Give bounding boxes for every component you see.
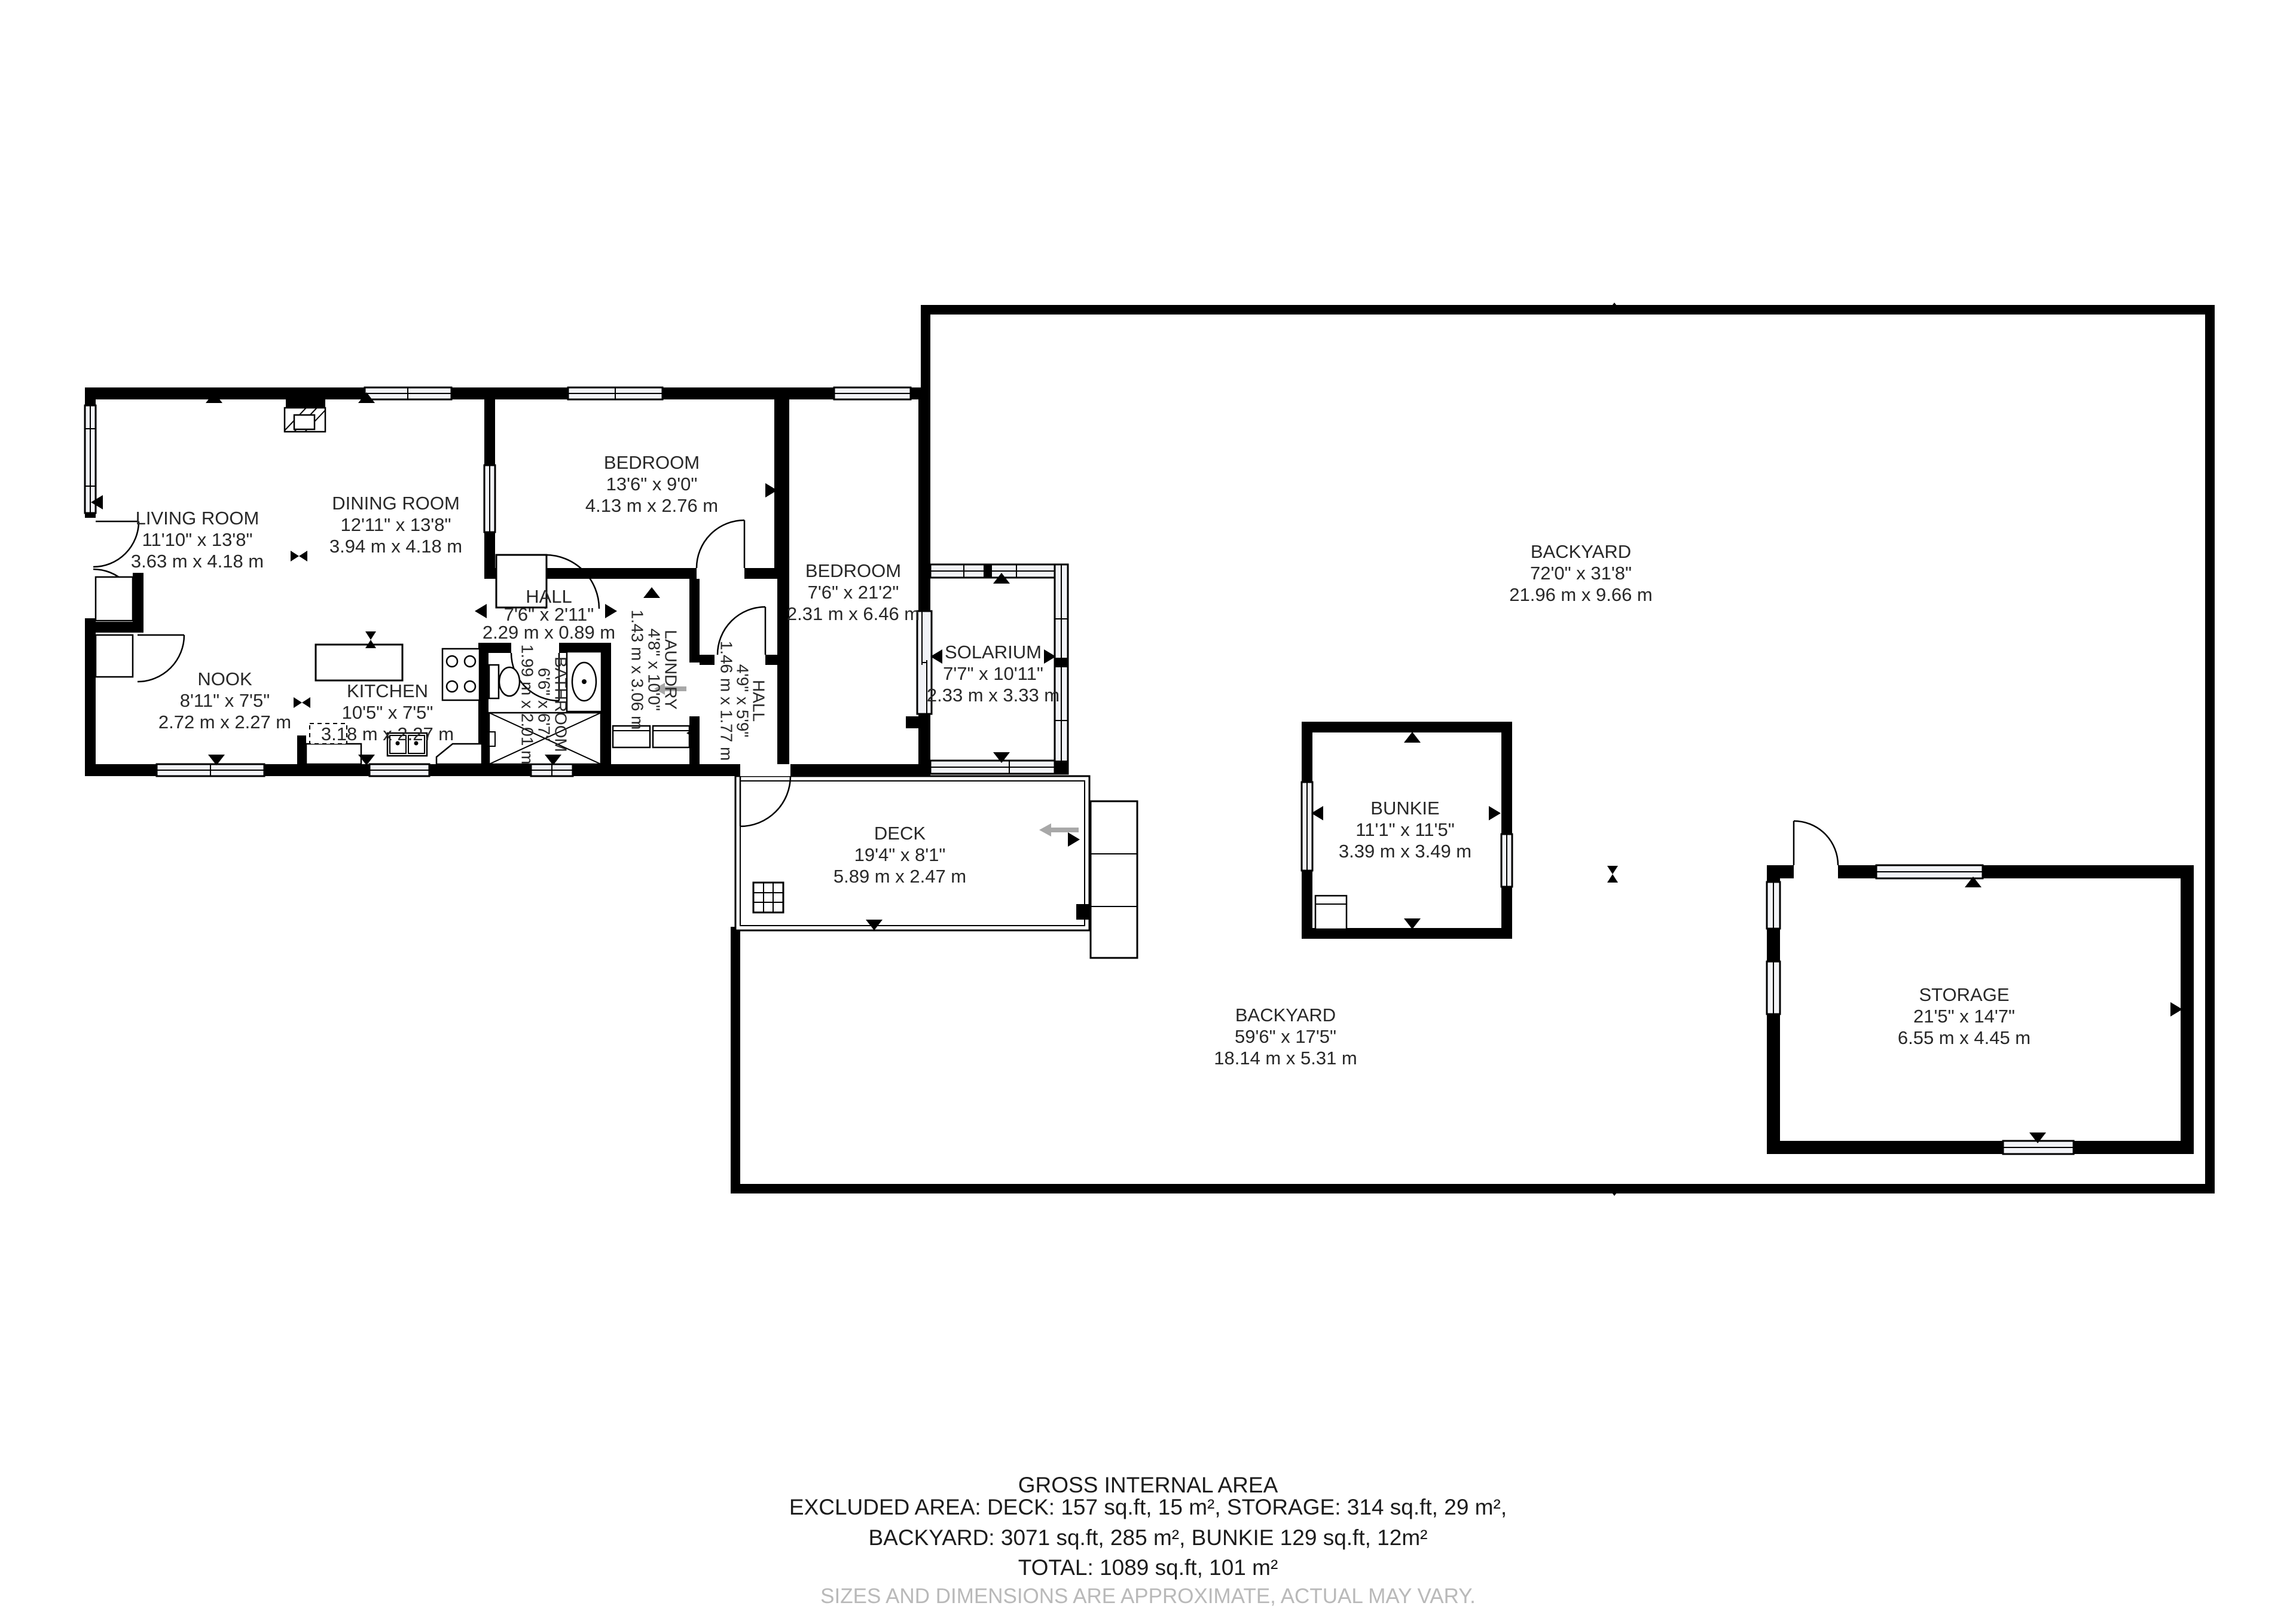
room-dim-metric: 4.13 m x 2.76 m (585, 495, 718, 516)
bowtie-marker (291, 551, 307, 561)
room-dim-metric: 6.55 m x 4.45 m (1898, 1027, 2031, 1048)
stove-burner (465, 656, 475, 667)
stove-burner (465, 681, 475, 692)
door-bedroom-top (697, 520, 744, 568)
room-dim-imperial: 21'5" x 14'7" (1913, 1006, 2015, 1027)
counter (306, 744, 361, 764)
room-name: DINING ROOM (332, 493, 460, 514)
room-label-solarium: SOLARIUM 7'7" x 10'11" 2.33 m x 3.33 m (927, 642, 1060, 706)
stove-burner (447, 656, 457, 667)
area-dim-imperial: 72'0" x 31'8" (1530, 563, 1632, 584)
area-name: DECK (874, 823, 926, 844)
room-label-bedroom-right: BEDROOM 7'6" x 21'2" 2.31 m x 6.46 m (787, 560, 920, 624)
table-body (1315, 896, 1347, 929)
room-dim-imperial: 6'6" x 6'7" (535, 668, 554, 741)
room-dim-metric: 3.18 m x 2.27 m (321, 724, 454, 744)
stove-body (442, 649, 480, 700)
toilet-tank (489, 665, 499, 698)
backyard-boundary (731, 305, 2215, 1193)
window-bathroom-bottom (531, 764, 573, 776)
area-name: BACKYARD (1235, 1005, 1336, 1025)
footer-total: TOTAL: 1089 sq.ft, 101 m² (0, 1555, 2296, 1580)
room-dim-imperial: 8'11" x 7'5" (180, 690, 270, 711)
room-dim-metric: 3.39 m x 3.49 m (1339, 841, 1471, 862)
room-dim-imperial: 13'6" x 9'0" (606, 474, 698, 494)
room-labels: LIVING ROOM 11'10" x 13'8" 3.63 m x 4.18… (131, 452, 2031, 1069)
room-label-kitchen: KITCHEN 10'5" x 7'5" 3.18 m x 2.27 m (321, 680, 454, 744)
footer-disclaimer: SIZES AND DIMENSIONS ARE APPROXIMATE, AC… (0, 1585, 2296, 1608)
nook-closet (96, 635, 133, 677)
window-bedroom2-top (834, 387, 911, 399)
triangle-marker (475, 604, 487, 618)
grill-body (753, 883, 783, 912)
room-dim-imperial: 7'7" x 10'11" (943, 663, 1043, 684)
room-label-storage: STORAGE 21'5" x 14'7" 6.55 m x 4.45 m (1898, 984, 2031, 1048)
window-bedroom-top (568, 387, 662, 399)
room-dim-metric: 1.99 m x 2.01 m (518, 645, 537, 765)
triangle-marker (1404, 732, 1421, 743)
door-nook (138, 635, 184, 682)
chimney-flue (294, 415, 315, 429)
room-dim-imperial: 7'6" x 21'2" (808, 582, 899, 603)
dryer (653, 726, 689, 747)
room-label-bunkie: BUNKIE 11'1" x 11'5" 3.39 m x 3.49 m (1339, 798, 1471, 862)
nook-closet (96, 577, 133, 621)
floor-plan: LIVING ROOM 11'10" x 13'8" 3.63 m x 4.18… (0, 0, 2296, 1624)
window-hall-closet (484, 465, 495, 532)
area-label-backyard-upper: BACKYARD 72'0" x 31'8" 21.96 m x 9.66 m (1509, 541, 1653, 605)
triangle-marker (643, 587, 660, 598)
door-gap (740, 764, 790, 776)
footer-excluded-area: EXCLUDED AREA: DECK: 157 sq.ft, 15 m², S… (0, 1495, 2296, 1520)
room-name: STORAGE (1919, 984, 2009, 1005)
kitchen-island (316, 645, 402, 680)
bowtie-marker (1607, 866, 1618, 883)
room-dim-metric: 2.72 m x 2.27 m (158, 712, 291, 732)
room-name: BUNKIE (1370, 798, 1439, 819)
grill-icon (753, 883, 783, 912)
room-name: SOLARIUM (945, 642, 1042, 663)
backyard-boundary-wall (731, 305, 2215, 1193)
room-dim-imperial: 4'8" x 10'0" (645, 628, 664, 711)
room-dim-imperial: 11'10" x 13'8" (142, 529, 253, 550)
area-dim-metric: 5.89 m x 2.47 m (833, 866, 966, 887)
room-dim-metric: 3.63 m x 4.18 m (131, 551, 264, 572)
room-name: NOOK (197, 668, 252, 689)
window-mullion (1055, 761, 1068, 774)
step-box (1091, 801, 1137, 958)
stove-burner (447, 681, 457, 692)
triangle-marker (1404, 918, 1421, 929)
room-dim-imperial: 11'1" x 11'5" (1355, 819, 1454, 840)
area-name: BACKYARD (1531, 541, 1631, 562)
triangle-marker (1489, 806, 1501, 820)
room-dim-metric: 1.43 m x 3.06 m (628, 610, 647, 730)
area-label-backyard-lower: BACKYARD 59'6" x 17'5" 18.14 m x 5.31 m (1214, 1005, 1357, 1069)
deck-post (1076, 904, 1089, 920)
laundry-appliances (613, 726, 689, 747)
bowtie-marker (294, 697, 310, 708)
window-kitchen-bottom (370, 764, 429, 776)
floor-plan-canvas: LIVING ROOM 11'10" x 13'8" 3.63 m x 4.18… (0, 0, 2296, 1624)
basin-drain (582, 679, 587, 684)
door-gap (1794, 865, 1838, 878)
door-arc (138, 635, 184, 682)
room-name: LIVING ROOM (136, 508, 259, 529)
window-mullion (1055, 658, 1068, 667)
room-name: BEDROOM (805, 560, 901, 581)
door-storage (1794, 821, 1838, 865)
footer-backyard-bunkie: BACKYARD: 3071 sq.ft, 285 m², BUNKIE 129… (0, 1525, 2296, 1550)
toilet-bowl (499, 667, 520, 696)
room-dim-imperial: 12'11" x 13'8" (341, 514, 451, 535)
stove-icon (442, 649, 480, 700)
door-gap (85, 518, 96, 618)
room-name: KITCHEN (347, 680, 428, 701)
room-name: LAUNDRY (662, 630, 680, 710)
room-label-bedroom-top: BEDROOM 13'6" x 9'0" 4.13 m x 2.76 m (585, 452, 718, 516)
room-name: BEDROOM (604, 452, 700, 473)
area-dim-metric: 21.96 m x 9.66 m (1509, 584, 1653, 605)
window-nook-bottom (157, 764, 264, 776)
window-dining-top (365, 387, 451, 399)
window-living-left (85, 405, 96, 513)
room-dim-metric: 1.46 m x 1.77 m (717, 641, 736, 761)
door-arc (697, 520, 744, 568)
room-label-dining-room: DINING ROOM 12'11" x 13'8" 3.94 m x 4.18… (329, 493, 462, 557)
door-gap (697, 568, 744, 579)
room-label-laundry: LAUNDRY 4'8" x 10'0" 1.43 m x 3.06 m (628, 610, 680, 730)
area-dim-imperial: 59'6" x 17'5" (1235, 1026, 1336, 1047)
counter-corner (436, 744, 482, 764)
room-dim-metric: 2.31 m x 6.46 m (787, 603, 920, 624)
chimney-icon (285, 408, 325, 432)
room-label-living-room: LIVING ROOM 11'10" x 13'8" 3.63 m x 4.18… (131, 508, 264, 572)
room-dim-imperial: 10'5" x 7'5" (342, 702, 433, 723)
window-mullion (984, 564, 992, 578)
area-dim-imperial: 19'4" x 8'1" (854, 844, 946, 865)
door-arc (1794, 821, 1838, 865)
bunkie-table (1315, 896, 1347, 929)
area-dim-metric: 18.14 m x 5.31 m (1214, 1048, 1357, 1069)
room-label-nook: NOOK 8'11" x 7'5" 2.72 m x 2.27 m (158, 668, 291, 732)
room-dim-metric: 2.29 m x 0.89 m (483, 622, 615, 643)
room-name: BATHROOM (552, 657, 570, 752)
triangle-marker (605, 604, 617, 618)
room-dim-metric: 2.33 m x 3.33 m (927, 685, 1060, 706)
room-dim-metric: 3.94 m x 4.18 m (329, 536, 462, 557)
bowtie-marker (365, 631, 376, 648)
shower-valve (489, 732, 495, 746)
footer-title: GROSS INTERNAL AREA (0, 1473, 2296, 1498)
